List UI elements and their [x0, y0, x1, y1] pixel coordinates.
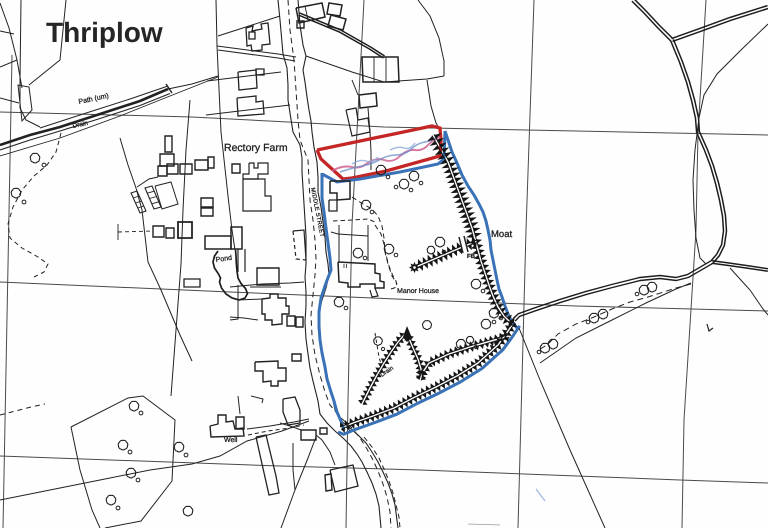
- svg-text:Rectory Farm: Rectory Farm: [224, 142, 288, 154]
- svg-text:Manor House: Manor House: [397, 288, 439, 295]
- svg-text:Well: Well: [224, 436, 238, 444]
- svg-text:Moat: Moat: [491, 229, 512, 240]
- svg-text:FB: FB: [467, 253, 476, 260]
